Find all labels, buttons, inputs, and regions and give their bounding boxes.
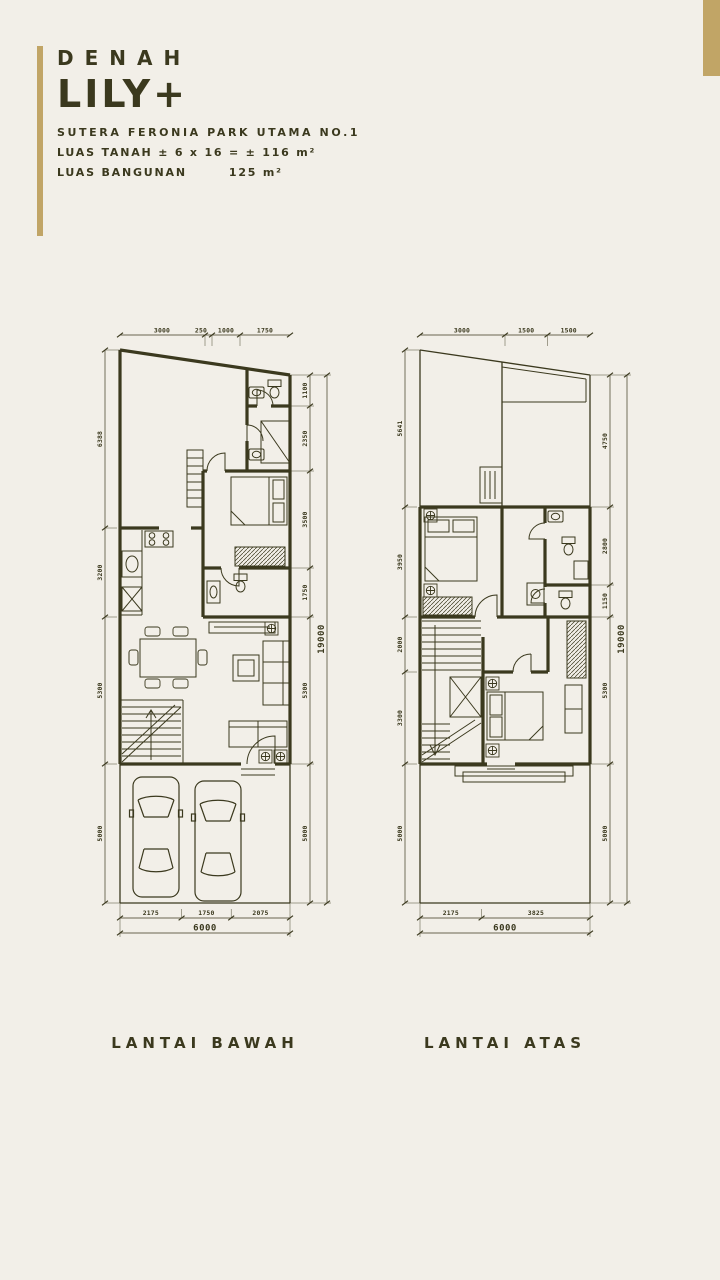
planter <box>259 750 272 763</box>
yard-outline <box>420 764 590 903</box>
dim-label: 1750 <box>301 584 309 600</box>
dim-label: 2800 <box>601 538 609 554</box>
lower-floor-plan: 3000 250 1000 1750 6388 3200 5300 5000 1… <box>95 325 355 955</box>
upper-furniture <box>422 509 588 782</box>
nightstand <box>424 584 437 597</box>
dim-label-total-depth: 19000 <box>617 624 627 654</box>
dim-label: 5000 <box>96 825 104 841</box>
dim-label: 5641 <box>396 420 404 436</box>
dim-label: 3000 <box>454 327 470 335</box>
dim-labels: 3000 1500 1500 5641 3950 2000 3300 5000 … <box>396 327 627 934</box>
dim-label: 3000 <box>154 327 170 335</box>
dim-label: 5300 <box>301 682 309 698</box>
dim-label: 1750 <box>257 327 273 335</box>
stairs <box>120 700 183 764</box>
dim-label: 1500 <box>561 327 577 335</box>
toilet <box>234 574 247 592</box>
door-arc <box>475 595 497 617</box>
bed <box>425 517 477 581</box>
kitchen-counter <box>120 530 142 615</box>
dim-label: 5300 <box>96 682 104 698</box>
dim-label: 5300 <box>601 682 609 698</box>
land-area-row: LUAS TANAH ± 6 x 16 = ± 116 m² <box>57 146 360 159</box>
building-area-row: LUAS BANGUNAN125 m² <box>57 166 360 179</box>
sink <box>249 449 264 460</box>
balcony-canopy <box>455 766 573 782</box>
lower-dimensions: 3000 250 1000 1750 6388 3200 5300 5000 1… <box>96 327 331 938</box>
wardrobe <box>235 547 285 566</box>
dim-label: 5000 <box>396 825 404 841</box>
eyebrow-denah: DENAH <box>57 48 360 68</box>
planter <box>274 750 287 763</box>
door-arc <box>531 589 545 603</box>
dim-label: 3200 <box>96 564 104 580</box>
dim-label: 3500 <box>301 511 309 527</box>
coffee-table <box>233 655 259 681</box>
nightstand <box>486 677 499 690</box>
door-arc <box>513 654 531 672</box>
upper-floor-caption: LANTAI ATAS <box>395 1034 615 1052</box>
dim-label: 4750 <box>601 433 609 449</box>
brochure-page: DENAH LILY+ SUTERA FERONIA PARK UTAMA NO… <box>0 0 720 1280</box>
dim-label-total-width: 6000 <box>493 924 517 934</box>
dim-label: 6388 <box>96 431 104 447</box>
sink <box>548 511 563 522</box>
upper-floor-plan: 3000 1500 1500 5641 3950 2000 3300 5000 … <box>395 325 655 955</box>
dim-label: 1750 <box>198 909 214 917</box>
dim-label: 3825 <box>528 909 544 917</box>
door-arc <box>207 453 225 471</box>
door-arc <box>529 523 545 539</box>
sofa <box>263 641 289 705</box>
dim-label: 1000 <box>218 327 234 335</box>
dim-label: 5000 <box>601 825 609 841</box>
dim-label-total-depth: 19000 <box>317 624 327 654</box>
dim-label: 2000 <box>396 636 404 652</box>
wardrobe <box>423 597 472 615</box>
shelf <box>574 561 588 579</box>
dim-ticks <box>402 333 630 936</box>
building-area-value: 125 m² <box>229 166 283 179</box>
dim-ticks <box>102 333 330 936</box>
dim-label: 3950 <box>396 554 404 570</box>
dim-label: 2175 <box>143 909 159 917</box>
toilet <box>562 537 575 555</box>
shaft <box>480 467 502 503</box>
bed <box>487 692 543 740</box>
dim-label: 5000 <box>301 825 309 841</box>
dim-label: 2350 <box>301 430 309 446</box>
dim-label: 3300 <box>396 710 404 726</box>
dim-label: 2075 <box>252 909 268 917</box>
dim-label-total-width: 6000 <box>193 924 217 934</box>
dim-label: 1500 <box>518 327 534 335</box>
lower-floor-caption: LANTAI BAWAH <box>95 1034 315 1052</box>
project-subtitle: SUTERA FERONIA PARK UTAMA NO.1 <box>57 126 360 139</box>
header: DENAH LILY+ SUTERA FERONIA PARK UTAMA NO… <box>57 48 360 179</box>
header-accent-bar <box>37 46 43 236</box>
stove <box>145 531 173 547</box>
dim-labels: 3000 250 1000 1750 6388 3200 5300 5000 1… <box>96 327 327 934</box>
toilet <box>559 591 572 609</box>
land-area-text: LUAS TANAH ± 6 x 16 = ± 116 m² <box>57 146 316 159</box>
dim-label: 2175 <box>443 909 459 917</box>
car <box>130 777 183 897</box>
building-area-label: LUAS BANGUNAN <box>57 166 187 179</box>
dim-label: 250 <box>195 327 207 335</box>
carport <box>120 764 290 903</box>
page-title: LILY+ <box>57 75 360 113</box>
roof-area <box>420 350 590 507</box>
dining-table <box>140 639 196 677</box>
nightstand <box>486 744 499 757</box>
upper-dimensions: 3000 1500 1500 5641 3950 2000 3300 5000 … <box>396 327 631 938</box>
stairs <box>422 621 481 762</box>
dim-label: 1100 <box>301 382 309 398</box>
toilet <box>268 380 281 398</box>
dim-label: 1150 <box>601 593 609 609</box>
car <box>192 781 245 901</box>
corner-accent-tab <box>703 0 720 76</box>
wardrobe <box>567 621 586 678</box>
lower-furniture <box>120 380 290 775</box>
bed <box>231 477 287 525</box>
